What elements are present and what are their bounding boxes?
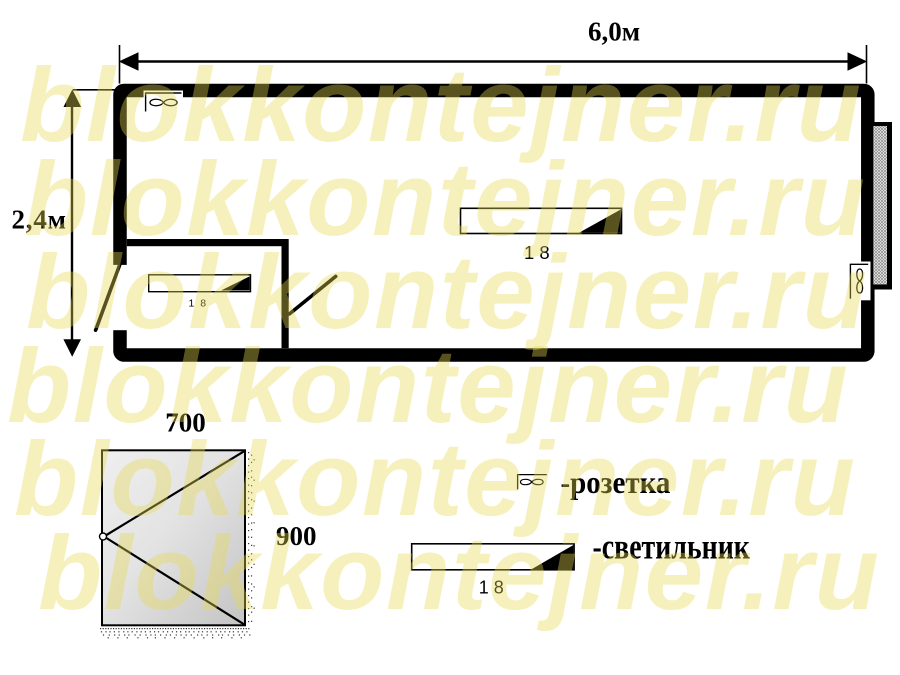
svg-text:6,0м: 6,0м bbox=[588, 17, 640, 47]
